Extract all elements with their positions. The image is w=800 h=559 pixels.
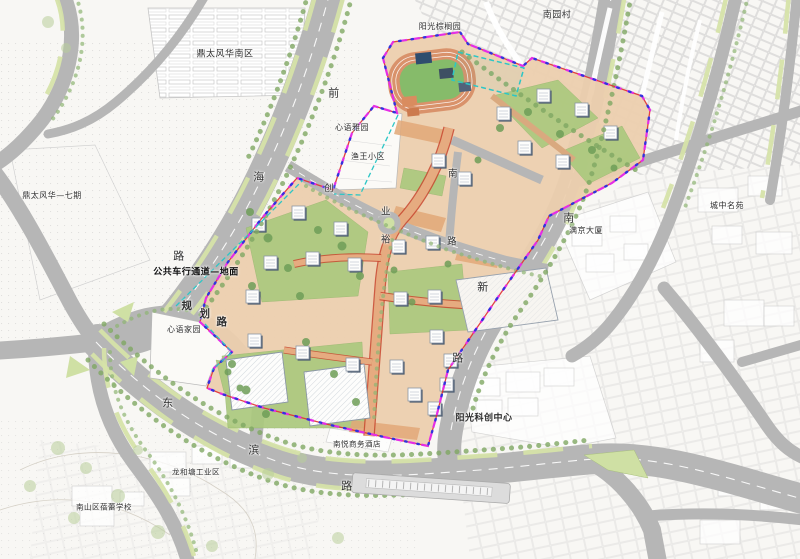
urban-plan-map: 鼎太风华南区鼎太风华—七期阳光棕榈园南园村心语雅园渔王小区心语家园城中名苑满京大… xyxy=(0,0,800,559)
map-drawing xyxy=(0,0,800,559)
